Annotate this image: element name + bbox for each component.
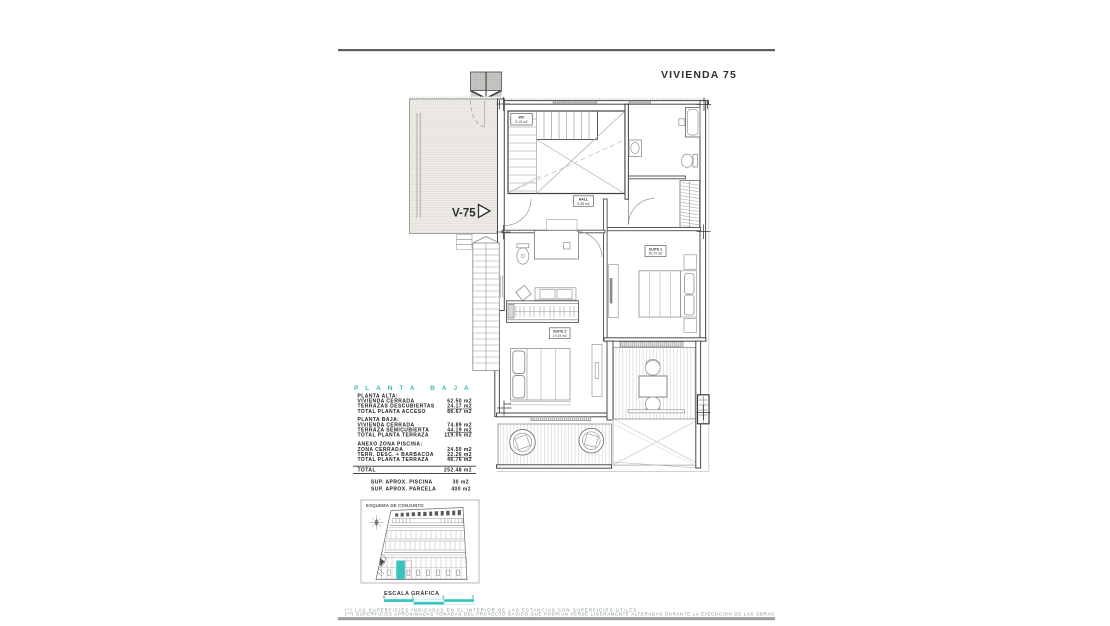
svg-text:119.05 m2: 119.05 m2	[444, 433, 472, 439]
svg-text:PLANTA BAJA: PLANTA BAJA	[354, 385, 476, 392]
svg-text:TOTAL PLANTA ACCESO: TOTAL PLANTA ACCESO	[358, 409, 426, 415]
svg-text:400 m2: 400 m2	[451, 487, 471, 493]
svg-text:SUP. APROX. PISCINA: SUP. APROX. PISCINA	[371, 480, 433, 486]
svg-text:2: 2	[442, 595, 445, 600]
svg-text:SUITE 1: SUITE 1	[649, 247, 662, 251]
svg-text:86.67 m2: 86.67 m2	[447, 409, 472, 415]
svg-text:SUP. APROX. PARCELA: SUP. APROX. PARCELA	[371, 487, 436, 493]
svg-text:TOTAL PLANTA TERRAZA: TOTAL PLANTA TERRAZA	[358, 457, 430, 463]
svg-text:30.74 m2: 30.74 m2	[649, 252, 663, 256]
svg-text:252.48 m2: 252.48 m2	[444, 467, 472, 473]
svg-text:(**) SUPERFICIES APROXIMADAS T: (**) SUPERFICIES APROXIMADAS TOMADAS DEL…	[345, 612, 775, 617]
svg-text:TOTAL PLANTA TERRAZA: TOTAL PLANTA TERRAZA	[358, 433, 430, 439]
svg-text:5.35 m2: 5.35 m2	[577, 202, 589, 206]
svg-text:46.76 m2: 46.76 m2	[447, 457, 472, 463]
svg-text:30 m2: 30 m2	[453, 480, 469, 486]
svg-text:V-75: V-75	[452, 208, 476, 220]
svg-text:3: 3	[472, 595, 475, 600]
svg-text:19.19 m2: 19.19 m2	[553, 334, 567, 338]
svg-text:WC: WC	[519, 116, 525, 120]
svg-text:TOTAL: TOTAL	[358, 467, 376, 473]
svg-text:5.10 m2: 5.10 m2	[515, 120, 527, 124]
svg-text:ESQUEMA DE CONJUNTO: ESQUEMA DE CONJUNTO	[366, 503, 424, 508]
svg-text:VIVIENDA 75: VIVIENDA 75	[661, 69, 737, 81]
